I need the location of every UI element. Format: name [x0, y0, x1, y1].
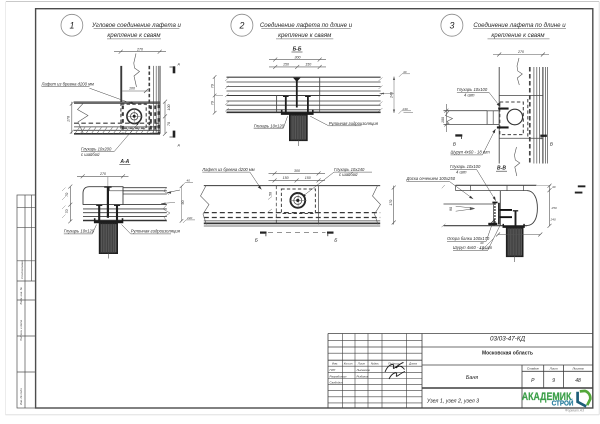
svg-text:50: 50 — [269, 192, 273, 196]
svg-text:Взам. инв. №: Взам. инв. № — [19, 287, 23, 304]
svg-text:170: 170 — [67, 116, 71, 122]
svg-text:ГИП: ГИП — [330, 368, 337, 372]
svg-text:300: 300 — [294, 169, 300, 173]
svg-text:СТРОЙ: СТРОЙ — [552, 398, 574, 408]
svg-text:Глухарь 10х200: Глухарь 10х200 — [81, 146, 112, 151]
svg-text:1: 1 — [69, 20, 74, 30]
svg-text:Узел 1, узел 2, узел 3: Узел 1, узел 2, узел 3 — [427, 399, 479, 405]
svg-text:крепление к сваям: крепление к сваям — [278, 32, 332, 39]
svg-text:№док.: №док. — [371, 362, 380, 366]
svg-text:Московская область: Московская область — [482, 350, 533, 357]
svg-text:крепление к сваям: крепление к сваям — [107, 32, 161, 39]
svg-text:03/03-47-КД: 03/03-47-КД — [490, 336, 526, 343]
svg-text:Листов: Листов — [571, 367, 584, 371]
svg-text:Лафет из бревна d200 мм: Лафет из бревна d200 мм — [201, 167, 254, 172]
svg-text:240: 240 — [550, 218, 556, 222]
svg-text:Рулонная гидроизоляция: Рулонная гидроизоляция — [329, 121, 379, 126]
svg-text:Рыбаков: Рыбаков — [357, 374, 369, 378]
svg-text:270: 270 — [99, 172, 106, 176]
svg-text:Согласовано: Согласовано — [20, 260, 24, 279]
svg-text:70: 70 — [65, 193, 69, 197]
svg-text:70: 70 — [167, 122, 171, 126]
svg-text:70: 70 — [65, 210, 69, 214]
svg-text:270: 270 — [136, 47, 143, 51]
svg-text:Стадия: Стадия — [527, 367, 539, 371]
svg-text:Кол.уч.: Кол.уч. — [344, 362, 354, 366]
svg-text:Угловое соединение лафета и: Угловое соединение лафета и — [91, 22, 182, 29]
svg-text:270: 270 — [517, 50, 524, 54]
svg-text:крепление к сваям: крепление к сваям — [491, 32, 545, 39]
svg-text:Изм.: Изм. — [332, 362, 338, 366]
svg-text:100: 100 — [441, 117, 445, 123]
svg-text:Соединение лафета по длине и: Соединение лафета по длине и — [260, 22, 353, 29]
svg-text:40: 40 — [552, 185, 556, 189]
svg-text:Рулонная гидроизоляция: Рулонная гидроизоляция — [131, 229, 181, 234]
svg-text:Опора балки 100х170: Опора балки 100х170 — [447, 236, 490, 241]
svg-text:150: 150 — [305, 63, 311, 67]
svg-text:240: 240 — [390, 92, 394, 99]
svg-text:Б: Б — [334, 238, 337, 244]
svg-text:4 шт: 4 шт — [464, 93, 475, 98]
svg-text:Лысенков: Лысенков — [356, 368, 371, 372]
svg-text:70: 70 — [210, 84, 214, 88]
svg-text:Глухарь 10х100: Глухарь 10х100 — [457, 87, 488, 92]
svg-text:Дата: Дата — [408, 362, 417, 366]
svg-text:150: 150 — [283, 63, 289, 67]
svg-text:100: 100 — [167, 105, 171, 111]
svg-text:Шуруп 4х60 - 18 шт: Шуруп 4х60 - 18 шт — [453, 245, 493, 250]
svg-text:Подпись и дата: Подпись и дата — [19, 319, 23, 341]
svg-text:240: 240 — [402, 107, 408, 111]
svg-text:А-А: А-А — [119, 159, 129, 165]
svg-text:40: 40 — [403, 70, 407, 74]
svg-text:Глухарь 10х120: Глухарь 10х120 — [254, 123, 285, 128]
svg-text:Инв. № подл.: Инв. № подл. — [19, 387, 23, 405]
svg-text:240: 240 — [186, 216, 192, 220]
svg-text:70: 70 — [210, 101, 214, 105]
svg-text:Разработал: Разработал — [330, 374, 347, 378]
svg-text:150: 150 — [305, 176, 311, 180]
svg-text:90: 90 — [449, 207, 453, 211]
svg-text:40: 40 — [187, 178, 191, 182]
svg-text:250: 250 — [551, 206, 557, 210]
svg-text:с шайбой: с шайбой — [339, 172, 358, 177]
svg-text:Свободин: Свободин — [330, 381, 344, 385]
svg-text:90: 90 — [181, 201, 185, 205]
svg-text:А: А — [177, 144, 181, 148]
svg-text:150: 150 — [283, 176, 289, 180]
svg-text:Лист: Лист — [549, 367, 558, 371]
svg-text:100: 100 — [129, 87, 135, 91]
svg-text:300: 300 — [295, 55, 301, 59]
svg-text:Б: Б — [255, 238, 258, 244]
svg-text:3: 3 — [449, 20, 454, 30]
svg-text:Шуруп 4х60 - 18 шт: Шуруп 4х60 - 18 шт — [451, 150, 491, 155]
svg-text:Баня: Баня — [466, 375, 478, 381]
svg-text:4 шт: 4 шт — [456, 170, 467, 175]
svg-text:Доска сечением 100х250: Доска сечением 100х250 — [406, 176, 456, 181]
svg-text:Соединение лафета по длине и: Соединение лафета по длине и — [473, 22, 566, 29]
svg-text:Глухарь 10х120: Глухарь 10х120 — [64, 229, 95, 234]
svg-text:А: А — [177, 63, 181, 67]
svg-text:Глухарь 10х100: Глухарь 10х100 — [450, 164, 481, 169]
svg-text:Б-Б: Б-Б — [293, 46, 302, 52]
svg-text:Лист: Лист — [357, 362, 366, 366]
svg-text:170: 170 — [389, 200, 393, 206]
svg-text:Формат А3: Формат А3 — [565, 409, 584, 413]
svg-text:2: 2 — [238, 20, 244, 30]
svg-text:9: 9 — [552, 378, 555, 384]
svg-text:В-В: В-В — [497, 166, 506, 172]
svg-text:Лафет из бревна d200 мм: Лафет из бревна d200 мм — [41, 82, 94, 87]
svg-text:48: 48 — [575, 378, 581, 384]
svg-text:с шайбой: с шайбой — [81, 152, 100, 157]
